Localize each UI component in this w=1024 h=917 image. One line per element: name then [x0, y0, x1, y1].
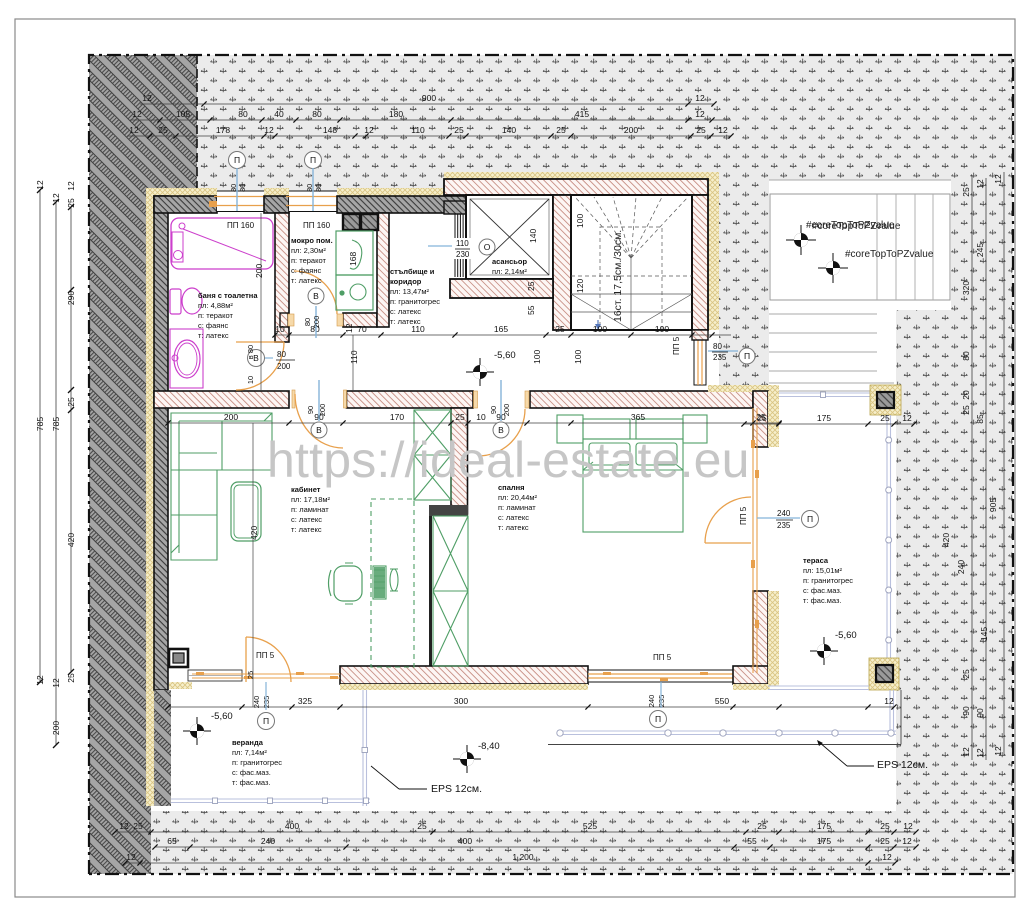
svg-text:25: 25	[66, 397, 76, 407]
svg-text:т: латекс: т: латекс	[498, 523, 529, 532]
svg-text:п: гранитогрес: п: гранитогрес	[803, 576, 853, 585]
svg-text:в 80: в 80	[246, 345, 255, 359]
svg-text:240: 240	[956, 560, 966, 574]
svg-text:-5,60: -5,60	[835, 630, 857, 641]
svg-text:О: О	[484, 242, 491, 252]
svg-text:12: 12	[132, 109, 142, 119]
svg-text:175: 175	[817, 821, 831, 831]
svg-text:120: 120	[575, 279, 585, 293]
svg-text:240: 240	[777, 509, 791, 518]
svg-text:420: 420	[249, 526, 259, 540]
svg-text:80: 80	[305, 184, 314, 192]
svg-text:ПП 5: ПП 5	[653, 653, 672, 662]
svg-text:ПП 5: ПП 5	[672, 336, 681, 355]
svg-text:EPS 12см.: EPS 12см.	[431, 783, 482, 795]
svg-text:-5,60: -5,60	[494, 350, 516, 361]
svg-text:170: 170	[390, 412, 404, 422]
svg-text:12: 12	[35, 675, 45, 685]
svg-text:140: 140	[502, 125, 516, 135]
svg-text:80: 80	[229, 184, 238, 192]
svg-text:пл: 13,47м²: пл: 13,47м²	[390, 287, 430, 296]
svg-text:25: 25	[880, 836, 890, 846]
svg-text:#coreTopToPZvalue: #coreTopToPZvalue	[812, 221, 901, 232]
svg-text:200: 200	[502, 404, 511, 417]
svg-text:мокро пом.: мокро пом.	[291, 236, 333, 245]
svg-text:12: 12	[142, 93, 152, 103]
svg-text:с: фаянс: с: фаянс	[198, 321, 228, 330]
svg-text:70: 70	[357, 324, 367, 334]
svg-text:235: 235	[777, 521, 791, 530]
svg-text:200: 200	[277, 362, 291, 371]
svg-text:100: 100	[532, 350, 542, 364]
svg-text:25: 25	[158, 125, 168, 135]
svg-text:12: 12	[126, 852, 136, 862]
svg-text:ПП 5: ПП 5	[256, 651, 275, 660]
svg-text:пл: 4,88м²: пл: 4,88м²	[198, 301, 233, 310]
svg-text:12: 12	[975, 748, 985, 758]
svg-text:пл: 2,14м²: пл: 2,14м²	[492, 267, 527, 276]
svg-text:12: 12	[35, 180, 45, 190]
svg-text:905: 905	[988, 498, 998, 512]
svg-text:178: 178	[216, 125, 230, 135]
svg-text:-8,40: -8,40	[478, 741, 500, 752]
svg-text:П: П	[234, 155, 240, 165]
svg-text:п: теракот: п: теракот	[291, 256, 326, 265]
svg-text:100: 100	[573, 350, 583, 364]
svg-text:П: П	[655, 714, 661, 724]
svg-text:25: 25	[66, 673, 76, 683]
svg-text:550: 550	[715, 696, 729, 706]
svg-text:п: гранитогрес: п: гранитогрес	[390, 297, 440, 306]
svg-text:140: 140	[528, 229, 538, 243]
svg-text:145: 145	[979, 627, 989, 641]
svg-text:55: 55	[526, 305, 536, 315]
svg-text:80: 80	[312, 109, 322, 119]
svg-text:-5,60: -5,60	[211, 711, 233, 722]
svg-text:25: 25	[961, 187, 971, 197]
svg-text:коридор: коридор	[390, 277, 422, 286]
svg-text:785: 785	[51, 417, 61, 431]
svg-text:25: 25	[454, 125, 464, 135]
svg-text:12: 12	[902, 836, 912, 846]
svg-text:290: 290	[66, 291, 76, 305]
svg-text:В: В	[313, 291, 319, 301]
svg-text:110: 110	[411, 125, 425, 135]
svg-text:110: 110	[349, 350, 359, 364]
svg-text:12: 12	[119, 821, 129, 831]
svg-text:80: 80	[238, 109, 248, 119]
svg-text:12: 12	[364, 125, 374, 135]
svg-text:420: 420	[941, 533, 951, 547]
svg-text:240: 240	[261, 836, 275, 846]
svg-text:12: 12	[882, 852, 892, 862]
svg-text:785: 785	[35, 417, 45, 431]
svg-text:55: 55	[747, 836, 757, 846]
svg-text:200: 200	[254, 264, 264, 278]
svg-text:стълбище и: стълбище и	[390, 267, 435, 276]
svg-text:пл: 20,44м²: пл: 20,44м²	[498, 493, 538, 502]
svg-text:25: 25	[133, 821, 143, 831]
svg-text:240: 240	[647, 695, 656, 708]
svg-text:пл: 17,18м²: пл: 17,18м²	[291, 495, 331, 504]
svg-text:148: 148	[323, 125, 337, 135]
svg-text:12: 12	[903, 821, 913, 831]
svg-text:П: П	[310, 155, 316, 165]
svg-text:365: 365	[631, 412, 645, 422]
svg-text:90: 90	[489, 406, 498, 414]
svg-text:с: фаянс: с: фаянс	[291, 266, 321, 275]
svg-text:EPS 12см.: EPS 12см.	[877, 759, 928, 771]
svg-text:25: 25	[880, 821, 890, 831]
svg-text:325: 325	[298, 696, 312, 706]
svg-text:веранда: веранда	[232, 738, 264, 747]
svg-text:П: П	[807, 514, 813, 524]
svg-text:25: 25	[880, 413, 890, 423]
svg-text:80: 80	[713, 342, 722, 351]
svg-text:п: ламинат: п: ламинат	[498, 503, 536, 512]
svg-text:#coreTopToPZvalue: #coreTopToPZvalue	[845, 249, 934, 260]
svg-text:т: латекс: т: латекс	[198, 331, 229, 340]
svg-text:110: 110	[456, 239, 469, 248]
svg-text:п: ламинат: п: ламинат	[291, 505, 329, 514]
svg-text:с: латекс: с: латекс	[390, 307, 421, 316]
svg-text:230: 230	[456, 250, 470, 259]
svg-text:п: гранитогрес: п: гранитогрес	[232, 758, 282, 767]
svg-text:https://ideal-estate.eu: https://ideal-estate.eu	[267, 432, 750, 488]
svg-text:12: 12	[66, 181, 76, 191]
svg-text:80: 80	[314, 184, 323, 192]
svg-text:с: латекс: с: латекс	[498, 513, 529, 522]
svg-text:12: 12	[129, 125, 139, 135]
svg-text:400: 400	[285, 821, 299, 831]
svg-text:П: П	[263, 716, 269, 726]
svg-text:20: 20	[961, 390, 971, 400]
svg-text:с: латекс: с: латекс	[291, 515, 322, 524]
svg-text:175: 175	[817, 413, 831, 423]
svg-text:12: 12	[961, 747, 971, 757]
svg-text:235: 235	[713, 353, 727, 362]
svg-text:80: 80	[961, 351, 971, 361]
svg-text:80: 80	[303, 318, 312, 326]
svg-text:12: 12	[344, 323, 354, 333]
svg-text:25: 25	[757, 821, 767, 831]
svg-text:25: 25	[455, 412, 465, 422]
svg-text:т: фас.маз.: т: фас.маз.	[803, 596, 842, 605]
svg-text:200: 200	[312, 316, 321, 329]
svg-text:25: 25	[556, 125, 566, 135]
svg-text:асансьор: асансьор	[492, 257, 527, 266]
svg-text:100: 100	[575, 214, 585, 228]
svg-text:900: 900	[422, 93, 436, 103]
svg-text:100: 100	[593, 324, 607, 334]
svg-text:200: 200	[318, 404, 327, 417]
svg-text:25: 25	[526, 281, 536, 291]
svg-text:90: 90	[975, 708, 985, 718]
svg-text:пл: 2,30м²: пл: 2,30м²	[291, 246, 326, 255]
svg-text:168: 168	[348, 252, 358, 266]
svg-text:16ст. 17,5см./30см.: 16ст. 17,5см./30см.	[612, 230, 624, 322]
svg-text:пл: 7,14м²: пл: 7,14м²	[232, 748, 267, 757]
svg-text:240: 240	[252, 696, 261, 709]
svg-text:12: 12	[884, 696, 894, 706]
svg-text:100: 100	[655, 324, 669, 334]
svg-text:п: теракот: п: теракот	[198, 311, 233, 320]
svg-text:25: 25	[246, 671, 255, 679]
svg-text:25: 25	[696, 125, 706, 135]
svg-text:165: 165	[494, 324, 508, 334]
svg-text:т: латекс: т: латекс	[291, 525, 322, 534]
svg-text:с: фас.маз.: с: фас.маз.	[232, 768, 271, 777]
svg-text:85: 85	[975, 414, 985, 424]
svg-text:420: 420	[66, 533, 76, 547]
svg-text:12: 12	[695, 109, 705, 119]
svg-text:200: 200	[224, 412, 238, 422]
svg-text:415: 415	[575, 109, 589, 119]
svg-text:10: 10	[476, 412, 486, 422]
svg-text:т: фас.маз.: т: фас.маз.	[232, 778, 271, 787]
svg-text:12: 12	[695, 93, 705, 103]
svg-text:200: 200	[624, 125, 638, 135]
svg-text:25: 25	[961, 669, 971, 679]
svg-text:1 200: 1 200	[512, 852, 534, 862]
svg-text:тераса: тераса	[803, 556, 829, 565]
svg-text:П: П	[744, 351, 750, 361]
svg-text:ПП 160: ПП 160	[227, 221, 255, 230]
svg-text:12: 12	[975, 179, 985, 189]
svg-text:25: 25	[555, 324, 565, 334]
svg-text:т: латекс: т: латекс	[291, 276, 322, 285]
svg-text:12: 12	[993, 746, 1003, 756]
svg-text:40: 40	[274, 109, 284, 119]
svg-text:пл: 15,01м²: пл: 15,01м²	[803, 566, 843, 575]
svg-text:80: 80	[238, 184, 247, 192]
svg-text:245: 245	[975, 243, 985, 257]
svg-text:175: 175	[817, 836, 831, 846]
svg-text:105: 105	[176, 109, 190, 119]
svg-text:т: латекс: т: латекс	[390, 317, 421, 326]
svg-text:400: 400	[458, 836, 472, 846]
svg-text:80: 80	[277, 350, 286, 359]
svg-text:12: 12	[718, 125, 728, 135]
svg-text:90: 90	[961, 706, 971, 716]
svg-text:10: 10	[246, 376, 255, 384]
svg-text:25: 25	[417, 821, 427, 831]
svg-text:200: 200	[51, 721, 61, 735]
svg-text:баня с тоалетна: баня с тоалетна	[198, 291, 258, 300]
svg-text:65: 65	[167, 836, 177, 846]
svg-text:ПП 160: ПП 160	[303, 221, 331, 230]
svg-text:25: 25	[961, 405, 971, 415]
svg-text:25: 25	[757, 413, 767, 423]
svg-text:12: 12	[51, 678, 61, 688]
svg-text:90: 90	[306, 406, 315, 414]
svg-text:с: фас.маз.: с: фас.маз.	[803, 586, 842, 595]
svg-text:320: 320	[961, 281, 971, 295]
svg-text:180: 180	[389, 109, 403, 119]
svg-text:ПП 5: ПП 5	[739, 506, 748, 525]
svg-text:12: 12	[993, 174, 1003, 184]
svg-text:525: 525	[583, 821, 597, 831]
svg-text:300: 300	[454, 696, 468, 706]
svg-text:12: 12	[902, 413, 912, 423]
